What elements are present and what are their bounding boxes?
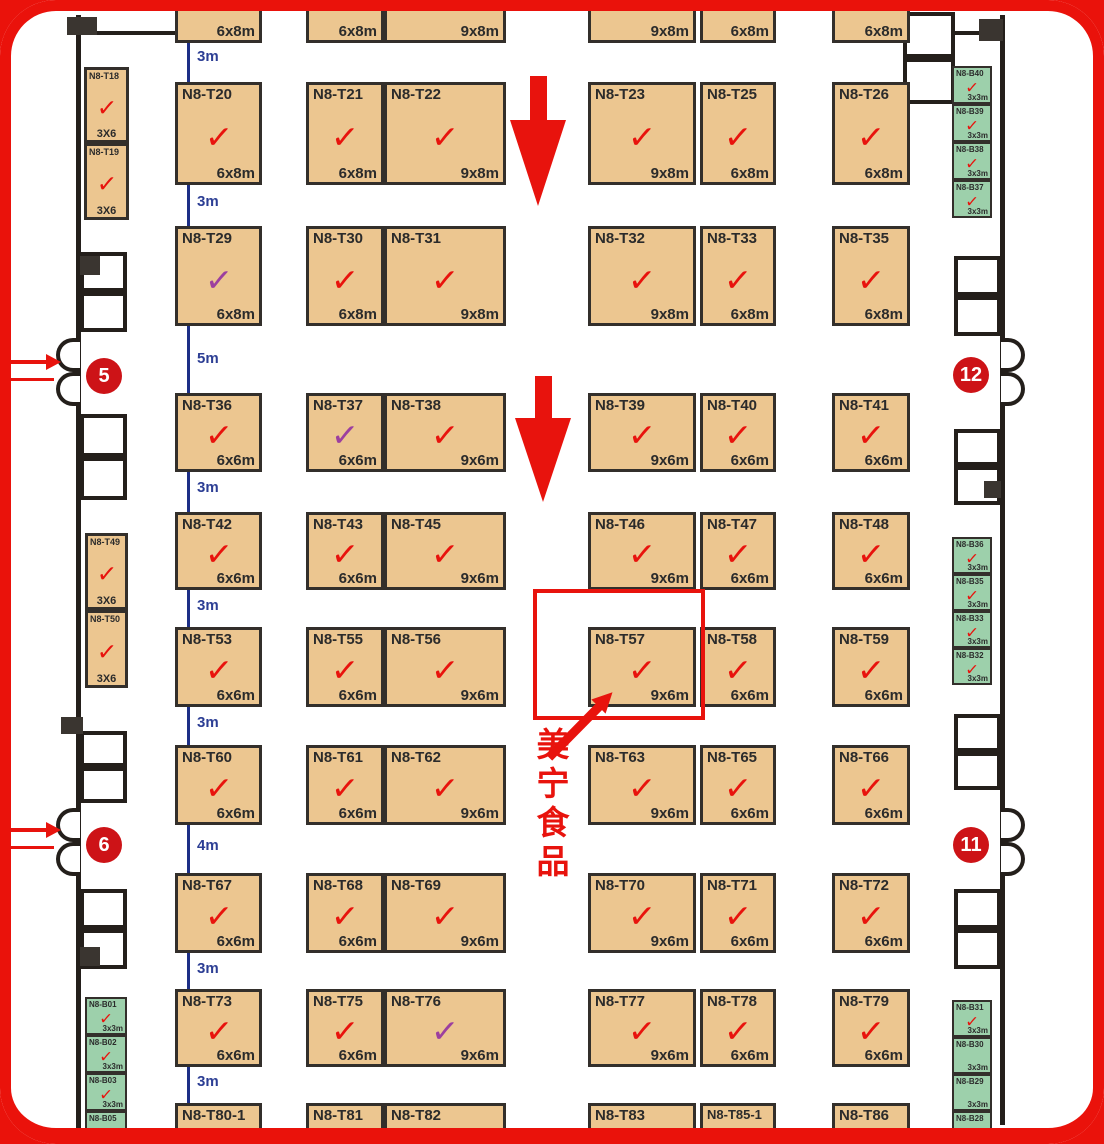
- booth-size-label: 6x8m: [217, 165, 255, 182]
- booth-N8-T47[interactable]: N8-T476x6m✓: [700, 512, 776, 590]
- red-checkmark-icon: ✓: [430, 262, 460, 297]
- door-hinge-block: [984, 481, 1001, 498]
- booth-N8-T42[interactable]: N8-T426x6m✓: [175, 512, 262, 590]
- booth-id-label: N8-T36: [182, 397, 232, 414]
- red-checkmark-icon: ✓: [627, 418, 657, 453]
- booth-N8-T81[interactable]: N8-T81✓: [306, 1103, 384, 1144]
- booth-id-label: N8-B28: [956, 1114, 984, 1123]
- red-checkmark-icon: ✓: [430, 653, 460, 688]
- booth-id-label: N8-T48: [839, 516, 889, 533]
- booth-N8-T65[interactable]: N8-T656x6m✓: [700, 745, 776, 825]
- dimension-label: 5m: [197, 350, 219, 367]
- booth-id-label: N8-T21: [313, 86, 363, 103]
- booth-id-label: N8-T73: [182, 993, 232, 1010]
- booth-id-label: N8-T60: [182, 749, 232, 766]
- dimension-label: 3m: [197, 597, 219, 614]
- booth-size-label: 6x8m: [731, 23, 769, 40]
- red-checkmark-icon: ✓: [627, 1013, 657, 1048]
- gate-swing-arc: [1001, 338, 1025, 372]
- booth-size-label: 6x8m: [217, 306, 255, 323]
- booth-N8-B39[interactable]: N8-B393x3m✓: [952, 104, 992, 142]
- booth-N8-T26[interactable]: N8-T266x8m✓: [832, 82, 910, 185]
- booth-size-label: 9x8m: [461, 306, 499, 323]
- dimension-line: [187, 470, 190, 512]
- booth-N8-T58[interactable]: N8-T586x6m✓: [700, 627, 776, 707]
- red-checkmark-icon: ✓: [856, 1120, 886, 1144]
- booth-size-label: 3X6: [97, 128, 117, 140]
- gate-swing-arc: [1001, 808, 1025, 842]
- red-checkmark-icon: ✓: [430, 120, 460, 155]
- booth-id-label: N8-T38: [391, 397, 441, 414]
- booth-id-label: N8-T77: [595, 993, 645, 1010]
- red-checkmark-icon: ✓: [330, 1013, 360, 1048]
- red-checkmark-icon: ✓: [330, 653, 360, 688]
- booth-N8-T85-1[interactable]: N8-T85-1✓: [700, 1103, 776, 1144]
- booth-size-label: 6x8m: [865, 165, 903, 182]
- gate-number-badge-12: 12: [953, 357, 989, 393]
- booth-N8-T21[interactable]: N8-T216x8m✓: [306, 82, 384, 185]
- booth-id-label: N8-B30: [956, 1040, 984, 1049]
- booth-N8-T45[interactable]: N8-T459x6m✓: [384, 512, 506, 590]
- red-checkmark-icon: ✓: [723, 771, 753, 806]
- booth-N8-B38[interactable]: N8-B383x3m✓: [952, 142, 992, 180]
- booth-id-label: N8-T31: [391, 230, 441, 247]
- booth-size-label: 9x8m: [461, 165, 499, 182]
- entrance-arrow-shaft: [8, 828, 46, 832]
- booth-id-label: N8-T47: [707, 516, 757, 533]
- red-checkmark-icon: ✓: [96, 172, 118, 197]
- gate-number-badge-5: 5: [86, 358, 122, 394]
- red-checkmark-icon: ✓: [204, 536, 234, 571]
- booth-size-label: 6x8m: [339, 23, 377, 40]
- dimension-label: 3m: [197, 193, 219, 210]
- booth-N8-T61[interactable]: N8-T616x6m✓: [306, 745, 384, 825]
- booth-id-label: N8-T18: [89, 71, 119, 81]
- booth-id-label: N8-T35: [839, 230, 889, 247]
- booth-N8-T40[interactable]: N8-T406x6m✓: [700, 393, 776, 472]
- booth-id-label: N8-T19: [89, 147, 119, 157]
- booth-N8-T48[interactable]: N8-T486x6m✓: [832, 512, 910, 590]
- booth-N8-T86[interactable]: N8-T86✓: [832, 1103, 910, 1144]
- red-checkmark-icon: ✓: [96, 562, 118, 587]
- booth-N8-T79[interactable]: N8-T796x6m✓: [832, 989, 910, 1067]
- booth-id-label: N8-B29: [956, 1077, 984, 1086]
- door-hinge-block: [61, 717, 83, 734]
- red-checkmark-icon: ✓: [723, 418, 753, 453]
- booth-size-label: 9x6m: [461, 805, 499, 822]
- gate-number-badge-6: 6: [86, 827, 122, 863]
- booth-id-label: N8-T61: [313, 749, 363, 766]
- door-hinge-block: [979, 19, 1003, 41]
- booth-N8-T56[interactable]: N8-T569x6m✓: [384, 627, 506, 707]
- booth-N8-B01[interactable]: N8-B013x3m✓: [85, 997, 127, 1035]
- booth-size-label: 3x3m: [968, 1063, 988, 1072]
- booth-id-label: N8-T58: [707, 631, 757, 648]
- dimension-label: 3m: [197, 714, 219, 731]
- booth-id-label: N8-T43: [313, 516, 363, 533]
- booth-id-label: N8-B32: [956, 651, 984, 660]
- door: [80, 731, 127, 767]
- red-checkmark-icon: ✓: [965, 118, 979, 135]
- red-checkmark-icon: ✓: [723, 262, 753, 297]
- booth-size-label: 6x8m: [731, 165, 769, 182]
- booth-N8-B40[interactable]: N8-B403x3m✓: [952, 66, 992, 104]
- red-checkmark-icon: ✓: [965, 587, 979, 604]
- booth-N8-T68[interactable]: N8-T686x6m✓: [306, 873, 384, 953]
- gate-swing-arc: [1001, 372, 1025, 406]
- booth-N8-T69[interactable]: N8-T699x6m✓: [384, 873, 506, 953]
- red-checkmark-icon: ✓: [204, 771, 234, 806]
- booth-size-label: 9x8m: [651, 306, 689, 323]
- booth-size-label: 9x6m: [651, 933, 689, 950]
- booth-N8-T30[interactable]: N8-T306x8m✓: [306, 226, 384, 326]
- exhibition-floor-plan: 3m3m5m3m3m3m4m3m3m6x8m6x8m9x8m✓9x8m6x8m6…: [0, 0, 1104, 1144]
- booth-N8-T33[interactable]: N8-T336x8m✓: [700, 226, 776, 326]
- red-checkmark-icon: ✓: [965, 624, 979, 641]
- booth-size-label: 6x8m: [339, 306, 377, 323]
- purple-checkmark-icon: ✓: [430, 0, 460, 15]
- booth-N8-T43[interactable]: N8-T436x6m✓: [306, 512, 384, 590]
- booth-N8-T80-1[interactable]: N8-T80-1✓: [175, 1103, 262, 1144]
- door: [80, 292, 127, 332]
- booth-id-label: N8-T32: [595, 230, 645, 247]
- booth-N8-T59[interactable]: N8-T596x6m✓: [832, 627, 910, 707]
- aisle-direction-arrow-icon: [510, 76, 566, 206]
- booth-N8-B35[interactable]: N8-B353x3m✓: [952, 574, 992, 611]
- red-checkmark-icon: ✓: [627, 536, 657, 571]
- booth-id-label: N8-T42: [182, 516, 232, 533]
- booth-N8-T20[interactable]: N8-T206x8m✓: [175, 82, 262, 185]
- red-checkmark-icon: ✓: [96, 639, 118, 664]
- booth-N8-T55[interactable]: N8-T556x6m✓: [306, 627, 384, 707]
- booth-top-0[interactable]: 6x8m: [175, 0, 262, 43]
- booth-id-label: N8-B39: [956, 107, 984, 116]
- booth-id-label: N8-T45: [391, 516, 441, 533]
- red-checkmark-icon: ✓: [856, 418, 886, 453]
- booth-id-label: N8-T39: [595, 397, 645, 414]
- red-checkmark-icon: ✓: [430, 418, 460, 453]
- red-checkmark-icon: ✓: [430, 771, 460, 806]
- booth-size-label: 9x6m: [651, 805, 689, 822]
- red-checkmark-icon: ✓: [99, 1087, 113, 1104]
- red-checkmark-icon: ✓: [965, 194, 979, 211]
- booth-N8-T72[interactable]: N8-T726x6m✓: [832, 873, 910, 953]
- booth-size-label: 6x8m: [339, 165, 377, 182]
- booth-id-label: N8-T20: [182, 86, 232, 103]
- booth-N8-T22[interactable]: N8-T229x8m✓: [384, 82, 506, 185]
- booth-id-label: N8-B31: [956, 1003, 984, 1012]
- red-checkmark-icon: ✓: [965, 1013, 979, 1030]
- purple-checkmark-icon: ✓: [330, 418, 360, 453]
- booth-size-label: 9x6m: [461, 452, 499, 469]
- booth-N8-T75[interactable]: N8-T756x6m✓: [306, 989, 384, 1067]
- booth-N8-T32[interactable]: N8-T329x8m✓: [588, 226, 696, 326]
- red-checkmark-icon: ✓: [965, 1124, 979, 1141]
- booth-N8-T76[interactable]: N8-T769x6m✓: [384, 989, 506, 1067]
- red-checkmark-icon: ✓: [204, 653, 234, 688]
- highlighted-company-label: 美宁食品: [534, 727, 567, 883]
- booth-id-label: N8-B01: [89, 1000, 117, 1009]
- dimension-line: [187, 43, 190, 82]
- booth-id-label: N8-T22: [391, 86, 441, 103]
- booth-id-label: N8-T56: [391, 631, 441, 648]
- red-checkmark-icon: ✓: [204, 418, 234, 453]
- entrance-arrow-icon: [46, 354, 61, 370]
- door: [954, 296, 1001, 336]
- booth-N8-T67[interactable]: N8-T676x6m✓: [175, 873, 262, 953]
- booth-N8-T73[interactable]: N8-T736x6m✓: [175, 989, 262, 1067]
- booth-N8-T31[interactable]: N8-T319x8m✓: [384, 226, 506, 326]
- dimension-label: 3m: [197, 1073, 219, 1090]
- dimension-label: 3m: [197, 960, 219, 977]
- entrance-line: [8, 846, 54, 849]
- door: [954, 929, 1001, 969]
- dimension-line: [187, 707, 190, 745]
- booth-id-label: N8-T40: [707, 397, 757, 414]
- red-checkmark-icon: ✓: [856, 771, 886, 806]
- booth-size-label: 9x8m: [461, 23, 499, 40]
- red-checkmark-icon: ✓: [430, 899, 460, 934]
- booth-N8-T35[interactable]: N8-T356x8m✓: [832, 226, 910, 326]
- booth-N8-T63[interactable]: N8-T639x6m✓: [588, 745, 696, 825]
- booth-N8-T66[interactable]: N8-T666x6m✓: [832, 745, 910, 825]
- booth-N8-T23[interactable]: N8-T239x8m✓: [588, 82, 696, 185]
- door: [80, 457, 127, 500]
- booth-id-label: N8-T70: [595, 877, 645, 894]
- booth-id-label: N8-T65: [707, 749, 757, 766]
- booth-id-label: N8-T29: [182, 230, 232, 247]
- door: [954, 429, 1001, 466]
- entrance-arrow-icon: [46, 822, 61, 838]
- booth-id-label: N8-B35: [956, 577, 984, 586]
- booth-id-label: N8-T37: [313, 397, 363, 414]
- door: [80, 414, 127, 457]
- red-checkmark-icon: ✓: [99, 1011, 113, 1028]
- booth-id-label: N8-B36: [956, 540, 984, 549]
- booth-N8-T46[interactable]: N8-T469x6m✓: [588, 512, 696, 590]
- booth-id-label: N8-T62: [391, 749, 441, 766]
- dimension-line: [187, 953, 190, 989]
- purple-checkmark-icon: ✓: [430, 1013, 460, 1048]
- dimension-line: [187, 326, 190, 393]
- gate-swing-arc: [56, 842, 80, 876]
- booth-size-label: 9x6m: [651, 570, 689, 587]
- booth-N8-B37[interactable]: N8-B373x3m✓: [952, 180, 992, 218]
- booth-top-1[interactable]: 6x8m: [306, 0, 384, 43]
- booth-id-label: N8-T72: [839, 877, 889, 894]
- booth-N8-T50[interactable]: N8-T503X6✓: [85, 610, 128, 688]
- booth-id-label: N8-T76: [391, 993, 441, 1010]
- door: [80, 889, 127, 929]
- booth-id-label: N8-T25: [707, 86, 757, 103]
- booth-size-label: 6x8m: [865, 23, 903, 40]
- booth-N8-T77[interactable]: N8-T779x6m✓: [588, 989, 696, 1067]
- dimension-label: 3m: [197, 48, 219, 65]
- booth-top-5[interactable]: 6x8m: [832, 0, 910, 43]
- gate-number-badge-11: 11: [953, 827, 989, 863]
- booth-size-label: 6x8m: [731, 306, 769, 323]
- red-checkmark-icon: ✓: [856, 653, 886, 688]
- red-checkmark-icon: ✓: [856, 262, 886, 297]
- booth-N8-T25[interactable]: N8-T256x8m✓: [700, 82, 776, 185]
- dimension-line: [187, 590, 190, 627]
- red-checkmark-icon: ✓: [856, 120, 886, 155]
- booth-size-label: 9x8m: [651, 23, 689, 40]
- red-checkmark-icon: ✓: [856, 899, 886, 934]
- booth-N8-B03[interactable]: N8-B033x3m✓: [85, 1073, 127, 1111]
- booth-id-label: N8-T75: [313, 993, 363, 1010]
- booth-top-2[interactable]: 9x8m✓: [384, 0, 506, 43]
- booth-N8-T62[interactable]: N8-T629x6m✓: [384, 745, 506, 825]
- booth-id-label: N8-T79: [839, 993, 889, 1010]
- dimension-line: [187, 1067, 190, 1103]
- booth-top-3[interactable]: 9x8m: [588, 0, 696, 43]
- booth-N8-T70[interactable]: N8-T709x6m✓: [588, 873, 696, 953]
- booth-N8-B28[interactable]: N8-B28✓: [952, 1111, 992, 1144]
- booth-N8-B31[interactable]: N8-B313x3m✓: [952, 1000, 992, 1037]
- booth-N8-B29[interactable]: N8-B293x3m: [952, 1074, 992, 1111]
- booth-id-label: N8-T59: [839, 631, 889, 648]
- red-checkmark-icon: ✓: [627, 1120, 657, 1144]
- booth-size-label: 6x8m: [865, 306, 903, 323]
- booth-id-label: N8-B05: [89, 1114, 117, 1123]
- dimension-line: [187, 825, 190, 873]
- entrance-arrow-shaft: [8, 360, 46, 364]
- booth-id-label: N8-T50: [90, 614, 120, 624]
- booth-N8-T78[interactable]: N8-T786x6m✓: [700, 989, 776, 1067]
- red-checkmark-icon: ✓: [330, 262, 360, 297]
- booth-size-label: 3x3m: [968, 1100, 988, 1109]
- booth-id-label: N8-T23: [595, 86, 645, 103]
- door-hinge-block: [67, 17, 97, 35]
- booth-N8-T83[interactable]: N8-T83✓: [588, 1103, 696, 1144]
- gate-swing-arc: [56, 372, 80, 406]
- red-checkmark-icon: ✓: [965, 80, 979, 97]
- door: [954, 714, 1001, 752]
- red-checkmark-icon: ✓: [330, 771, 360, 806]
- red-checkmark-icon: ✓: [627, 262, 657, 297]
- booth-N8-B32[interactable]: N8-B323x3m✓: [952, 648, 992, 685]
- booth-N8-T36[interactable]: N8-T366x6m✓: [175, 393, 262, 472]
- booth-id-label: N8-T46: [595, 516, 645, 533]
- floor-layer: 3m3m5m3m3m3m4m3m3m6x8m6x8m9x8m✓9x8m6x8m6…: [0, 0, 1104, 1144]
- red-checkmark-icon: ✓: [856, 536, 886, 571]
- highlight-rectangle: [533, 589, 705, 720]
- booth-size-label: 6x8m: [217, 23, 255, 40]
- aisle-direction-arrow-icon: [515, 376, 571, 502]
- red-checkmark-icon: ✓: [96, 95, 118, 120]
- booth-id-label: N8-B02: [89, 1038, 117, 1047]
- red-checkmark-icon: ✓: [330, 1120, 360, 1144]
- booth-size-label: 9x6m: [461, 687, 499, 704]
- booth-size-label: 9x6m: [461, 570, 499, 587]
- red-checkmark-icon: ✓: [204, 899, 234, 934]
- door-hinge-block: [80, 256, 100, 275]
- booth-N8-T19[interactable]: N8-T193X6✓: [84, 143, 129, 220]
- booth-N8-T41[interactable]: N8-T416x6m✓: [832, 393, 910, 472]
- booth-N8-B36[interactable]: N8-B363x3m✓: [952, 537, 992, 574]
- booth-id-label: N8-B38: [956, 145, 984, 154]
- booth-id-label: N8-T26: [839, 86, 889, 103]
- booth-id-label: N8-B37: [956, 183, 984, 192]
- booth-id-label: N8-B33: [956, 614, 984, 623]
- booth-N8-T53[interactable]: N8-T536x6m✓: [175, 627, 262, 707]
- booth-id-label: N8-T63: [595, 749, 645, 766]
- booth-N8-T82[interactable]: N8-T82✓: [384, 1103, 506, 1144]
- red-checkmark-icon: ✓: [330, 536, 360, 571]
- booth-N8-B33[interactable]: N8-B333x3m✓: [952, 611, 992, 648]
- booth-N8-B05[interactable]: N8-B05✓: [85, 1111, 127, 1144]
- booth-N8-T49[interactable]: N8-T493X6✓: [85, 533, 128, 610]
- booth-id-label: N8-T78: [707, 993, 757, 1010]
- booth-id-label: N8-T68: [313, 877, 363, 894]
- dimension-label: 4m: [197, 837, 219, 854]
- booth-size-label: 9x8m: [651, 165, 689, 182]
- red-checkmark-icon: ✓: [723, 1120, 753, 1144]
- booth-id-label: N8-T66: [839, 749, 889, 766]
- gate-swing-arc: [1001, 842, 1025, 876]
- red-checkmark-icon: ✓: [723, 120, 753, 155]
- red-checkmark-icon: ✓: [204, 1120, 234, 1144]
- booth-N8-B30[interactable]: N8-B303x3m: [952, 1037, 992, 1074]
- dimension-label: 3m: [197, 479, 219, 496]
- booth-N8-T37[interactable]: N8-T376x6m✓: [306, 393, 384, 472]
- red-checkmark-icon: ✓: [627, 771, 657, 806]
- door: [903, 12, 955, 58]
- red-checkmark-icon: ✓: [965, 550, 979, 567]
- booth-id-label: N8-T55: [313, 631, 363, 648]
- red-checkmark-icon: ✓: [856, 1013, 886, 1048]
- booth-top-4[interactable]: 6x8m: [700, 0, 776, 43]
- red-checkmark-icon: ✓: [965, 661, 979, 678]
- booth-id-label: N8-T49: [90, 537, 120, 547]
- red-checkmark-icon: ✓: [204, 1013, 234, 1048]
- door: [954, 889, 1001, 929]
- booth-id-label: N8-T30: [313, 230, 363, 247]
- door: [80, 767, 127, 803]
- red-checkmark-icon: ✓: [330, 899, 360, 934]
- booth-size-label: 9x6m: [461, 933, 499, 950]
- booth-id-label: N8-T71: [707, 877, 757, 894]
- red-checkmark-icon: ✓: [430, 1120, 460, 1144]
- red-checkmark-icon: ✓: [627, 120, 657, 155]
- red-checkmark-icon: ✓: [723, 1013, 753, 1048]
- booth-N8-T71[interactable]: N8-T716x6m✓: [700, 873, 776, 953]
- red-checkmark-icon: ✓: [99, 1125, 113, 1142]
- booth-N8-T38[interactable]: N8-T389x6m✓: [384, 393, 506, 472]
- red-checkmark-icon: ✓: [430, 536, 460, 571]
- booth-id-label: N8-T69: [391, 877, 441, 894]
- red-checkmark-icon: ✓: [627, 899, 657, 934]
- red-checkmark-icon: ✓: [204, 120, 234, 155]
- booth-size-label: 9x6m: [461, 1047, 499, 1064]
- booth-size-label: 3X6: [97, 595, 117, 607]
- booth-id-label: N8-B03: [89, 1076, 117, 1085]
- booth-id-label: N8-B40: [956, 69, 984, 78]
- booth-N8-T60[interactable]: N8-T606x6m✓: [175, 745, 262, 825]
- booth-size-label: 9x6m: [651, 1047, 689, 1064]
- red-checkmark-icon: ✓: [723, 536, 753, 571]
- booth-N8-T39[interactable]: N8-T399x6m✓: [588, 393, 696, 472]
- booth-N8-B02[interactable]: N8-B023x3m✓: [85, 1035, 127, 1073]
- red-checkmark-icon: ✓: [330, 120, 360, 155]
- booth-size-label: 9x6m: [651, 452, 689, 469]
- door-hinge-block: [80, 947, 100, 966]
- booth-N8-T18[interactable]: N8-T183X6✓: [84, 67, 129, 143]
- booth-id-label: N8-T33: [707, 230, 757, 247]
- booth-N8-T29[interactable]: N8-T296x8m✓: [175, 226, 262, 326]
- booth-id-label: N8-T53: [182, 631, 232, 648]
